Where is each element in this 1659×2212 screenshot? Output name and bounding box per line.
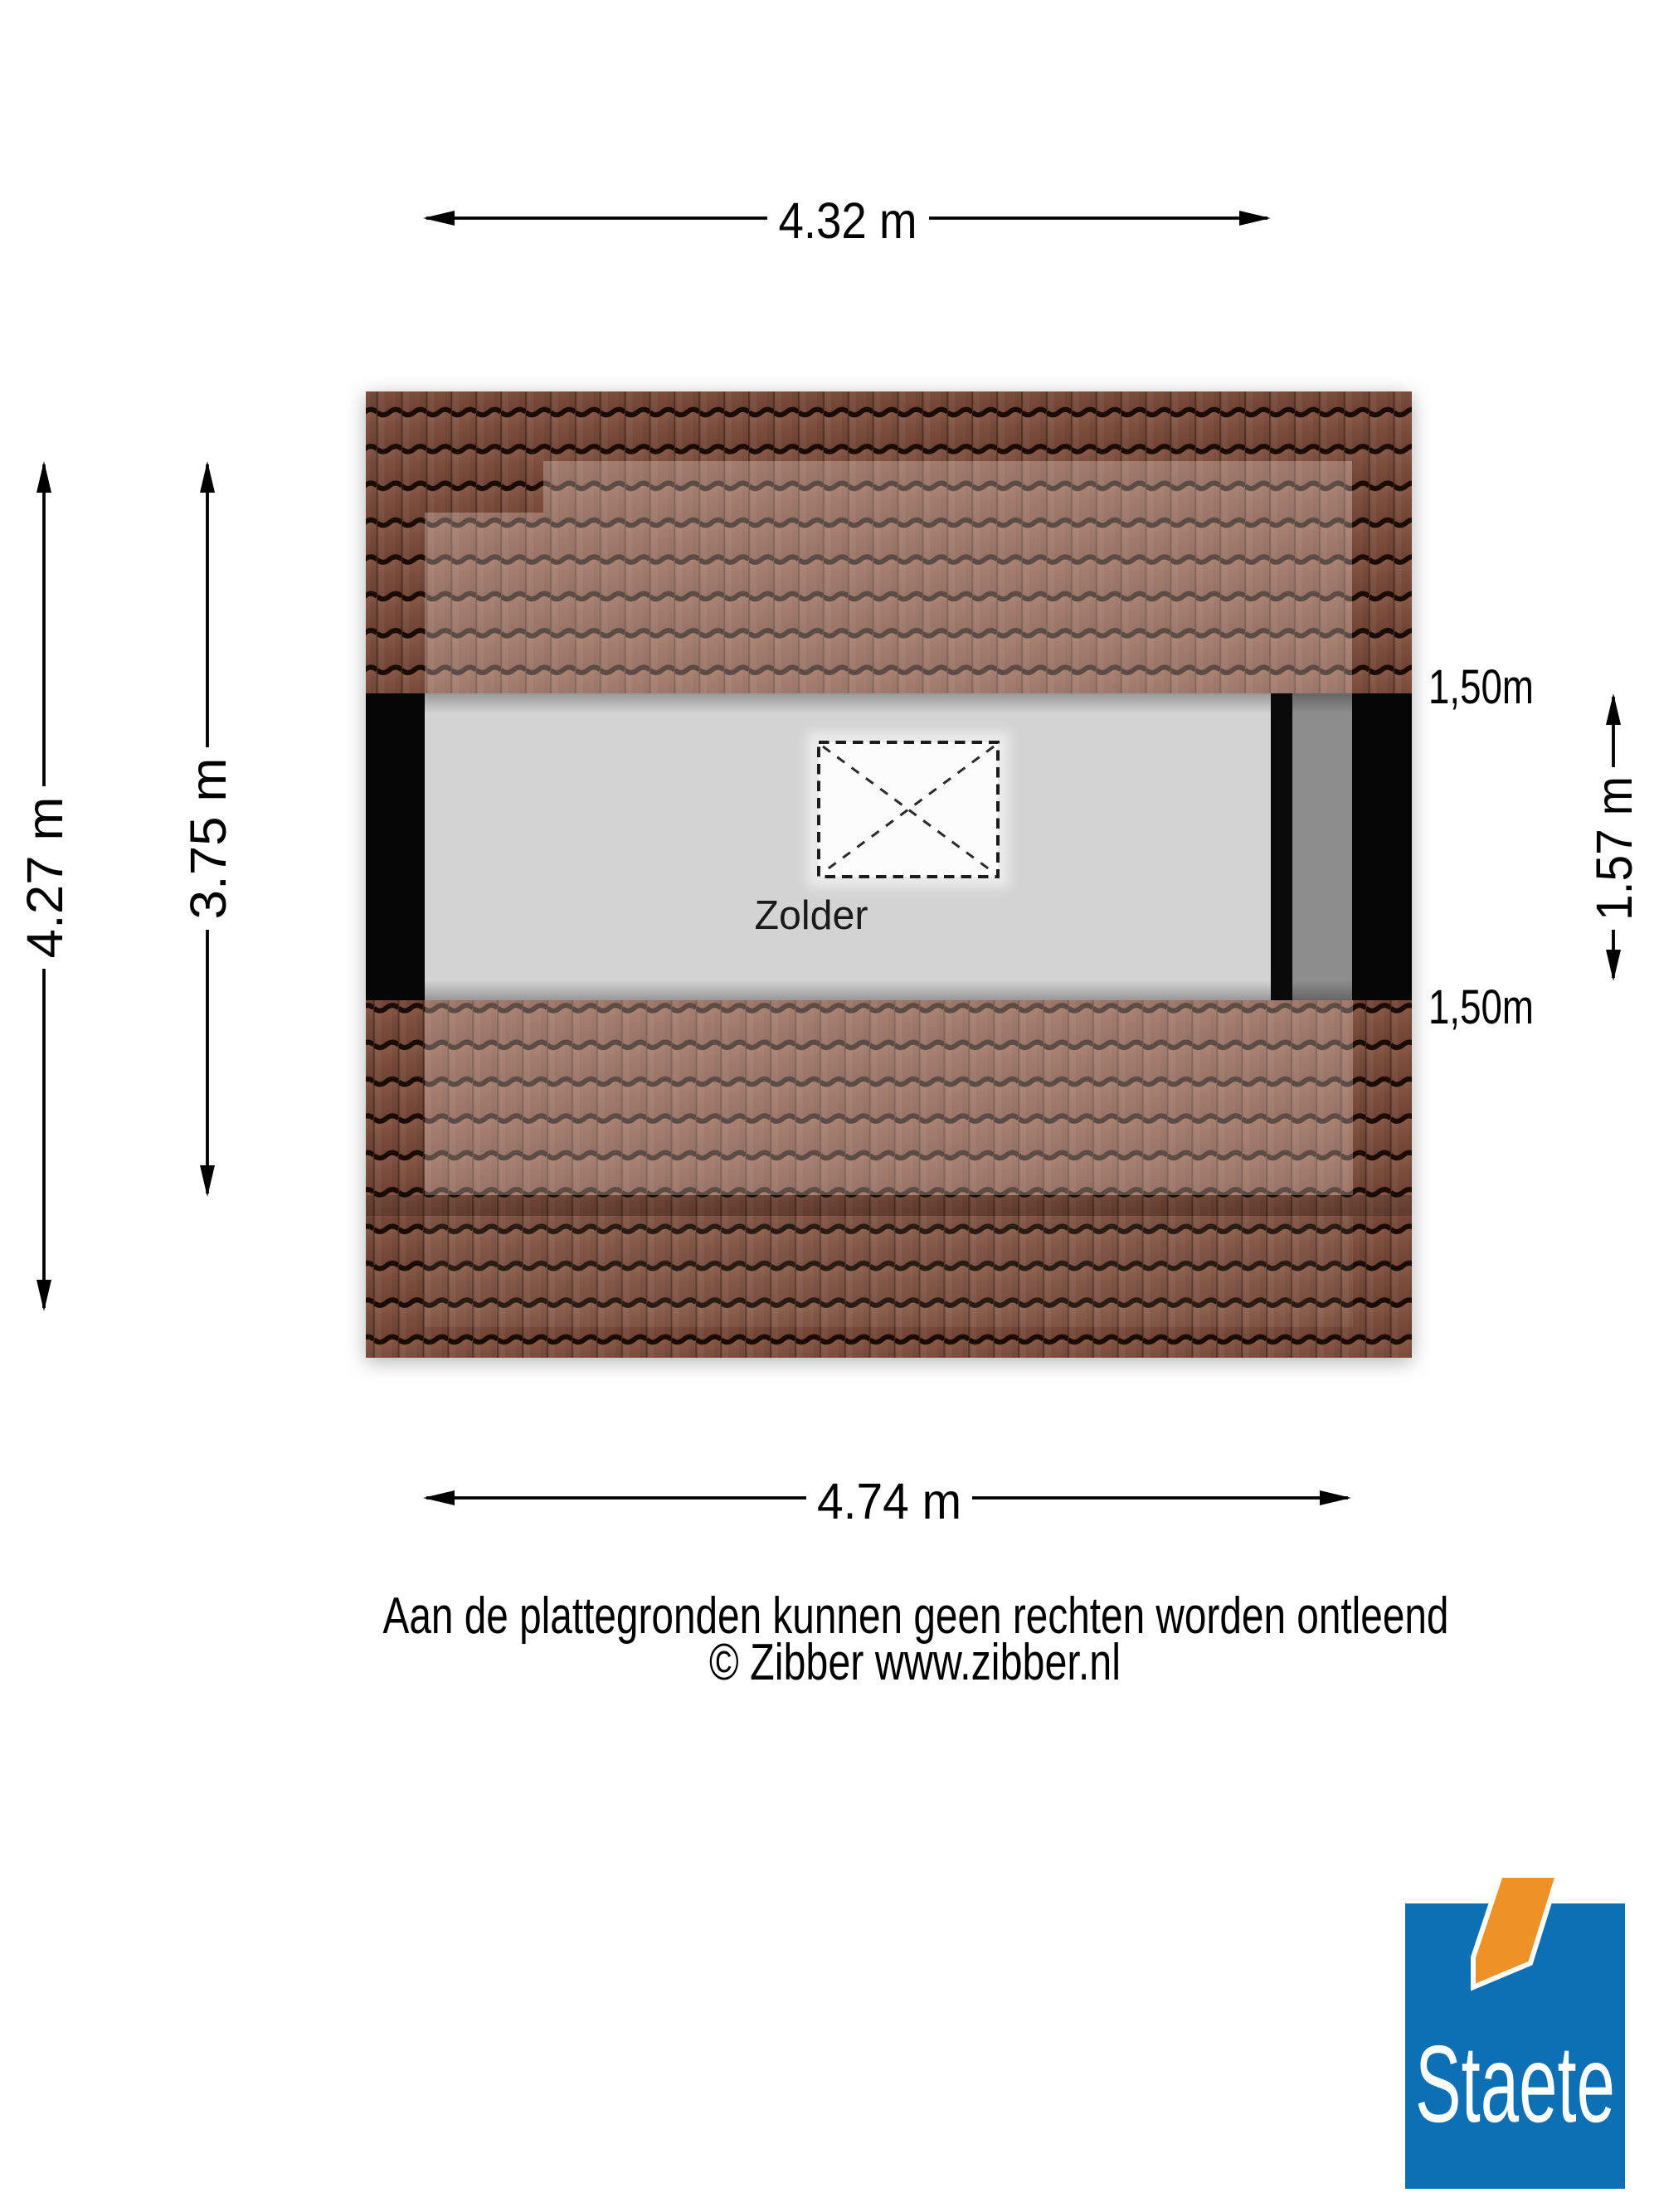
svg-text:3.75 m: 3.75 m [180,758,236,920]
svg-text:1,50m: 1,50m [1428,980,1534,1034]
svg-text:4.74 m: 4.74 m [817,1473,961,1529]
svg-text:4.32 m: 4.32 m [779,192,917,249]
svg-text:1,50m: 1,50m [1428,660,1534,714]
svg-text:© Zibber www.zibber.nl: © Zibber www.zibber.nl [709,1634,1121,1691]
svg-text:4.27 m: 4.27 m [17,797,73,959]
svg-text:1.57 m: 1.57 m [1586,776,1642,921]
svg-text:Staete: Staete [1415,2023,1615,2145]
svg-text:Zolder: Zolder [755,893,868,938]
